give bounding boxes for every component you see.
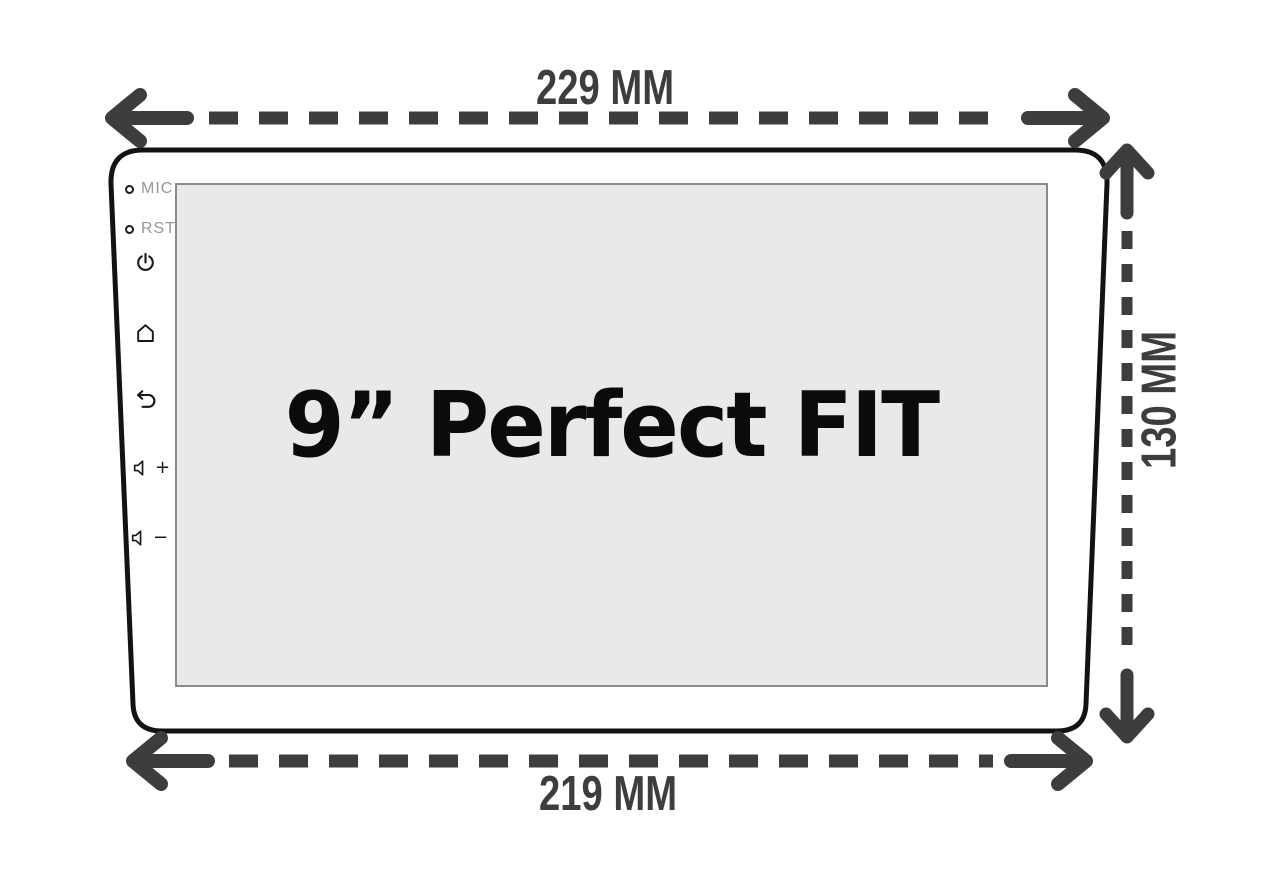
volume-down-icon (129, 527, 151, 549)
screen-size-text: 9” Perfect FIT (285, 373, 939, 478)
rst-label: RST (141, 221, 176, 237)
diagram-canvas: 229 MM 219 MM 130 MM 9” Perfect FIT MIC … (0, 0, 1280, 878)
mic-hole-icon (125, 185, 134, 194)
reset-hole-icon (125, 225, 134, 234)
home-icon (133, 321, 158, 343)
mic-label: MIC (141, 181, 173, 197)
mic-hole: MIC (125, 181, 173, 197)
power-icon (134, 251, 157, 274)
back-icon (132, 388, 159, 411)
device-screen: 9” Perfect FIT (175, 183, 1048, 687)
dimension-label-bottom-width: 219 MM (539, 770, 677, 819)
minus-sign: − (153, 529, 168, 547)
reset-button[interactable]: RST (125, 221, 176, 237)
dimension-label-top-width: 229 MM (536, 64, 674, 113)
volume-down-button[interactable]: − (129, 527, 168, 549)
back-button[interactable] (132, 388, 159, 411)
home-button[interactable] (133, 321, 158, 343)
volume-up-button[interactable]: + (131, 457, 170, 479)
volume-up-icon (131, 457, 153, 479)
power-button[interactable] (134, 251, 157, 274)
plus-sign: + (155, 459, 170, 477)
dimension-label-side-height: 130 MM (1136, 331, 1185, 469)
